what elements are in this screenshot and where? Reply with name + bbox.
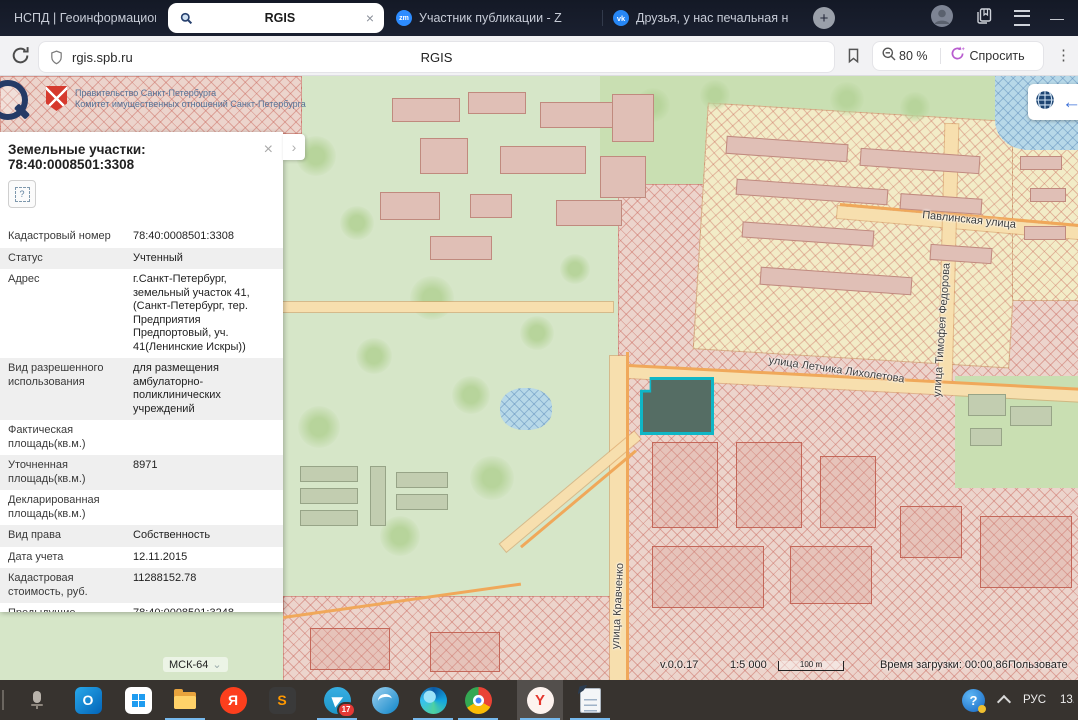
table-row: Кадастровая стоимость, руб.11288152.78	[0, 568, 283, 603]
browser-tab-bar: НСПД | Геоинформацион RGIS × zm Участник…	[0, 0, 1078, 36]
edge-icon	[420, 687, 447, 714]
taskbar-sublime-text[interactable]: S	[259, 680, 305, 720]
table-row: Кадастровый номер78:40:0008501:3308	[0, 226, 283, 248]
row-value: 78:40:0008501:3308	[125, 226, 283, 248]
telegram-badge: 17	[337, 702, 356, 718]
app-version: v.0.0.17	[660, 659, 698, 671]
microsoft-store-icon	[125, 687, 152, 714]
gov-header: Правительство Санкт-Петербурга Комитет и…	[46, 86, 306, 111]
taskbar-telegram[interactable]: 17	[314, 680, 360, 720]
table-row: Декларированная площадь(кв.м.)	[0, 490, 283, 525]
table-row: Вид разрешенного использованиядля размещ…	[0, 358, 283, 420]
chevron-right-icon: ›	[292, 139, 297, 155]
basemap-globe-icon[interactable]	[1034, 89, 1056, 116]
row-value: Собственность	[125, 525, 283, 547]
address-bar: rgis.spb.ru RGIS 80 % Спросить ⋮	[0, 36, 1078, 76]
load-time: Время загрузки: 00:00,86	[880, 659, 1008, 671]
road	[283, 302, 613, 312]
tab-separator	[602, 10, 603, 26]
collections-icon[interactable]	[974, 6, 994, 31]
bookmark-flag-icon[interactable]	[845, 47, 862, 69]
scale-bar: 100 m	[778, 661, 844, 671]
chrome-icon	[465, 687, 492, 714]
map-pond-small	[500, 388, 552, 430]
row-label: Кадастровая стоимость, руб.	[0, 568, 125, 603]
selected-parcel-78-40-0008501-3308[interactable]	[640, 377, 714, 435]
tab-close-icon[interactable]: ×	[366, 11, 374, 25]
user-label: Пользовате	[1008, 659, 1068, 671]
ask-button[interactable]: Спросить	[970, 49, 1025, 63]
kebab-menu-icon[interactable]: ⋮	[1056, 46, 1071, 64]
url-field[interactable]: rgis.spb.ru RGIS	[38, 41, 835, 73]
text-document-icon	[577, 687, 604, 714]
row-value: Учтенный	[125, 248, 283, 270]
row-label: Уточненная площадь(кв.м.)	[0, 455, 125, 490]
taskbar-edge[interactable]	[410, 680, 456, 720]
divider	[940, 48, 941, 64]
row-label: Кадастровый номер	[0, 226, 125, 248]
row-value: 12.11.2015	[125, 547, 283, 569]
yandex-browser-icon: Y	[527, 687, 554, 714]
row-value	[125, 490, 283, 525]
table-row: Дата учета12.11.2015	[0, 547, 283, 569]
parcel-info-panel: Земельные участки: 78:40:0008501:3308 × …	[0, 132, 283, 612]
tab-vk[interactable]: vk Друзья, у нас печальная н	[605, 0, 803, 36]
vk-icon: vk	[613, 10, 629, 26]
table-row: Фактическая площадь(кв.м.)	[0, 420, 283, 455]
taskbar-openoffice[interactable]	[362, 680, 408, 720]
taskbar-text-document[interactable]	[567, 680, 613, 720]
tray-expand-chevron-icon[interactable]	[997, 695, 1011, 709]
table-row: СтатусУчтенный	[0, 248, 283, 270]
map-canvas[interactable]: Павлинская улица улица Тимофея Федорова …	[0, 76, 1078, 680]
map-scale[interactable]: 1:5 000	[730, 659, 767, 671]
menu-hamburger-icon[interactable]	[1014, 10, 1030, 26]
yandex-icon: Я	[220, 687, 247, 714]
file-explorer-icon	[172, 687, 199, 714]
taskbar-voice-recorder[interactable]	[14, 680, 60, 720]
row-label: Фактическая площадь(кв.м.)	[0, 420, 125, 455]
openoffice-icon	[372, 687, 399, 714]
gov-line1: Правительство Санкт-Петербурга	[75, 88, 306, 99]
page-title: RGIS	[39, 50, 834, 65]
spb-coat-of-arms-icon	[46, 86, 67, 111]
table-row: Адресг.Санкт-Петербург, земельный участо…	[0, 269, 283, 358]
caret-down-icon: ⌄	[212, 658, 221, 671]
language-indicator[interactable]: РУС	[1023, 694, 1046, 706]
row-value: 78:40:0008501:3248, 78:40:0008501:3263	[125, 603, 283, 612]
collapse-left-arrow-icon[interactable]: ←	[1062, 93, 1078, 112]
taskbar-microsoft-store[interactable]	[115, 680, 161, 720]
profile-avatar[interactable]	[930, 4, 954, 33]
system-tray: ? РУС 13.1	[962, 680, 1078, 720]
row-value: 8971	[125, 455, 283, 490]
identify-tool-button[interactable]: ?	[8, 180, 36, 208]
row-value: для размещения амбулаторно-поликлиническ…	[125, 358, 283, 420]
row-value: 11288152.78	[125, 568, 283, 603]
panel-table: Кадастровый номер78:40:0008501:3308Стату…	[0, 226, 283, 612]
row-label: Предыдущие кадастровые номера	[0, 603, 125, 612]
row-label: Декларированная площадь(кв.м.)	[0, 490, 125, 525]
table-row: Вид праваСобственность	[0, 525, 283, 547]
panel-collapse-handle[interactable]: ›	[283, 134, 305, 160]
windows-taskbar: O Я S 17 Y ? РУС 13.1	[0, 680, 1078, 720]
taskbar-yandex[interactable]: Я	[210, 680, 256, 720]
window-minimize-icon[interactable]: —	[1050, 10, 1064, 26]
zoom-level[interactable]: 80 %	[899, 49, 928, 63]
tab-title: Друзья, у нас печальная н	[636, 11, 788, 25]
taskbar-edge-divider	[2, 690, 4, 710]
table-row: Уточненная площадь(кв.м.)8971	[0, 455, 283, 490]
rgis-magnifier-logo-icon	[0, 80, 30, 126]
magnifier-favicon-icon	[178, 10, 194, 26]
map-controls: ←	[1028, 84, 1078, 120]
taskbar-file-explorer[interactable]	[162, 680, 208, 720]
help-tray-icon[interactable]: ?	[962, 689, 985, 712]
row-label: Дата учета	[0, 547, 125, 569]
row-label: Вид разрешенного использования	[0, 358, 125, 420]
telegram-icon: 17	[324, 687, 351, 714]
panel-close-icon[interactable]: ×	[264, 142, 273, 158]
map-status-bar: МСК-64 ⌄ v.0.0.17 1:5 000 100 m Время за…	[0, 656, 1078, 680]
gov-line2: Комитет имущественных отношений Санкт-Пе…	[75, 99, 306, 110]
outlook-icon: O	[75, 687, 102, 714]
identify-question-icon: ?	[15, 187, 30, 202]
row-label: Статус	[0, 248, 125, 270]
browser-actions-chip: 80 % Спросить	[872, 41, 1044, 71]
zoom-out-magnifier-icon[interactable]	[881, 46, 897, 67]
tab-title: НСПД | Геоинформацион	[14, 11, 156, 25]
tab-title: RGIS	[194, 11, 366, 25]
taskbar-yandex-browser[interactable]: Y	[517, 680, 563, 720]
taskbar-chrome[interactable]	[455, 680, 501, 720]
tab-title: Участник публикации - Z	[419, 11, 562, 25]
panel-title: Земельные участки: 78:40:0008501:3308	[8, 142, 264, 172]
row-value: г.Санкт-Петербург, земельный участок 41,…	[125, 269, 283, 358]
taskbar-clock[interactable]: 13.1	[1060, 694, 1074, 706]
row-label: Вид права	[0, 525, 125, 547]
tab-zoom[interactable]: zm Участник публикации - Z	[388, 0, 600, 36]
taskbar-outlook[interactable]: O	[65, 680, 111, 720]
sublime-text-icon: S	[269, 687, 296, 714]
zoom-app-icon: zm	[396, 10, 412, 26]
tab-nspd[interactable]: НСПД | Геоинформацион	[0, 0, 164, 36]
row-value	[125, 420, 283, 455]
microphone-icon	[31, 691, 43, 709]
tab-rgis-active[interactable]: RGIS ×	[168, 3, 384, 33]
crs-selector[interactable]: МСК-64 ⌄	[163, 657, 228, 672]
ask-ai-icon	[949, 45, 966, 67]
crs-label: МСК-64	[169, 659, 208, 671]
table-row: Предыдущие кадастровые номера78:40:00085…	[0, 603, 283, 612]
reload-icon[interactable]	[10, 45, 31, 71]
new-tab-button[interactable]: +	[813, 7, 835, 29]
row-label: Адрес	[0, 269, 125, 358]
scale-bar-label: 100 m	[800, 660, 822, 669]
